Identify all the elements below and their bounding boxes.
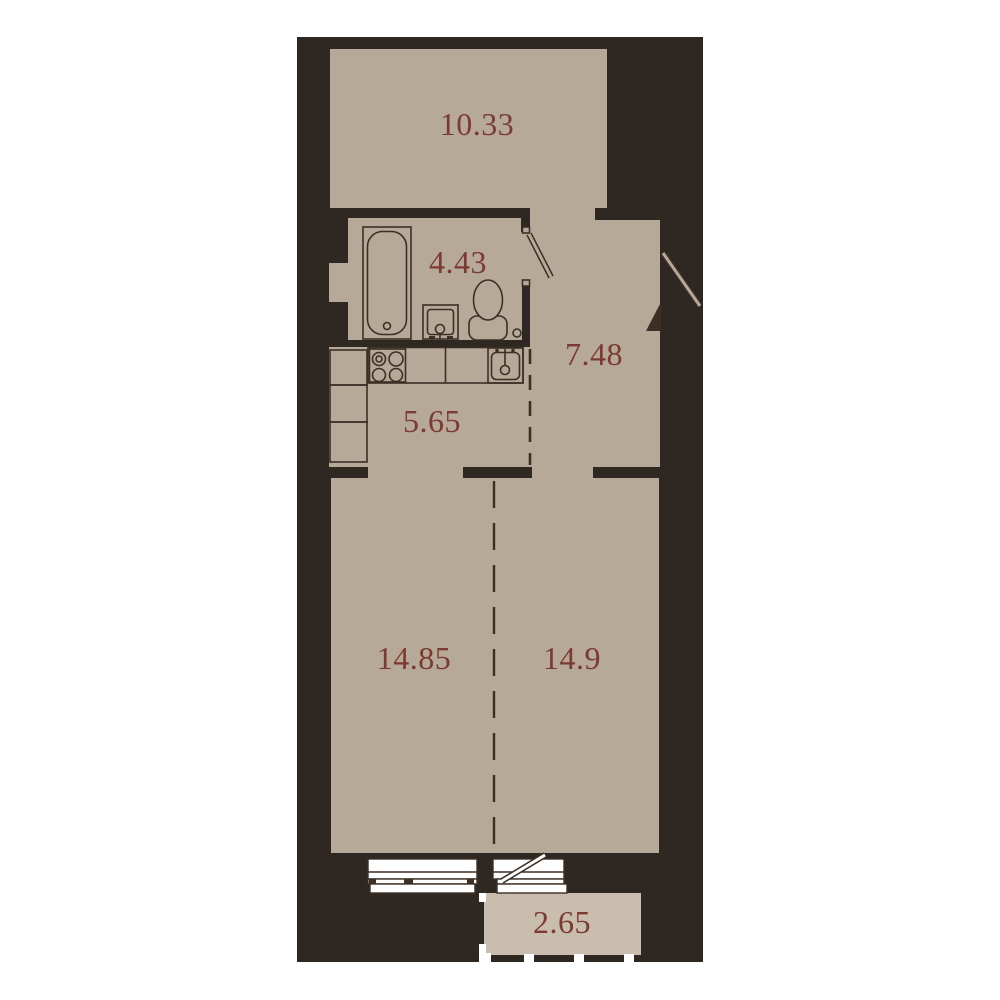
room-label-living-left: 14.85 [377, 642, 452, 674]
room-label-living-right: 14.9 [543, 642, 601, 674]
bathroom-door-jamb [521, 218, 530, 232]
wall-stub-hallway-top [595, 208, 660, 220]
bathroom-right-wall-stub [522, 280, 530, 340]
bathroom-niche [329, 263, 350, 302]
room-label-hallway: 7.48 [565, 338, 623, 370]
floor-plan: 10.33 4.43 5.65 7.48 14.85 14.9 2.65 [0, 0, 1000, 1000]
kitchen-living-opening [368, 467, 463, 478]
room-label-top-room: 10.33 [440, 108, 515, 140]
hallway-living-opening [532, 467, 593, 478]
room-label-kitchen: 5.65 [403, 405, 461, 437]
room-label-bathroom: 4.43 [429, 246, 487, 278]
room-label-balcony: 2.65 [533, 906, 591, 938]
